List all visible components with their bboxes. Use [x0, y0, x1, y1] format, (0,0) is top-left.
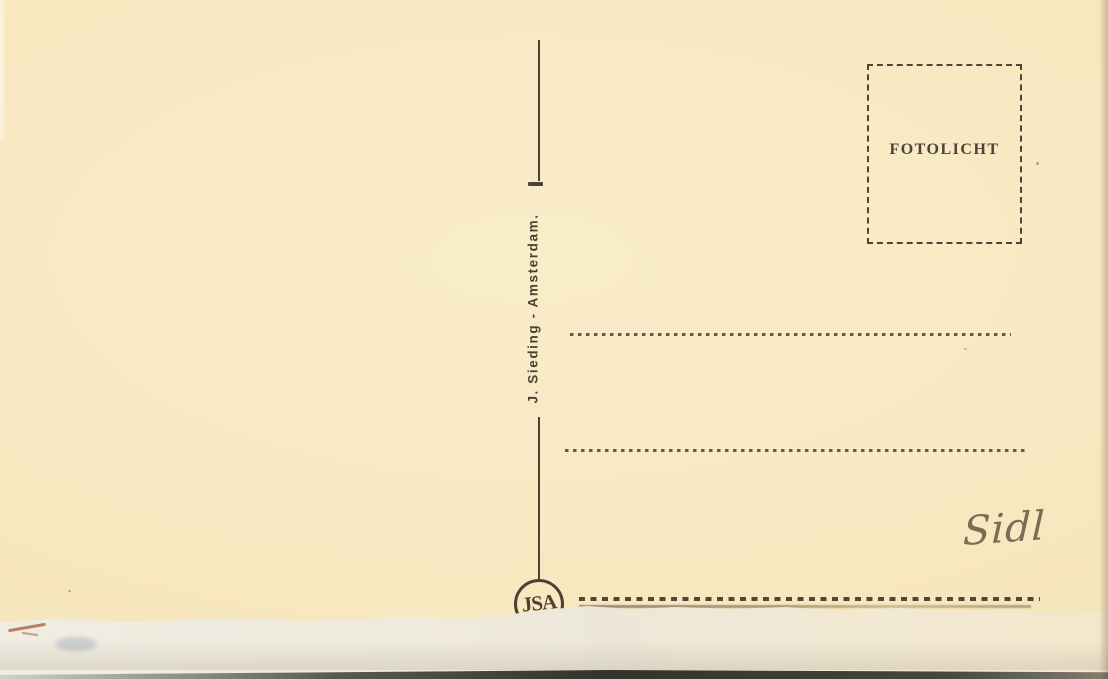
address-line-1 — [570, 333, 1011, 336]
divider-line-top — [538, 40, 540, 181]
tear-smudge-line — [579, 605, 1031, 608]
handwriting-note: Sidl — [962, 503, 1046, 555]
stamp-box: FOTOLICHT — [867, 64, 1022, 244]
publisher-credit: J. Sieding - Amsterdam. — [525, 199, 542, 419]
paper-speck — [964, 348, 967, 350]
paper-speck — [1036, 162, 1039, 165]
blue-ink-smudge — [55, 637, 97, 651]
divider-dash — [528, 182, 543, 186]
divider-line-bottom — [538, 417, 540, 579]
address-line-3 — [579, 597, 1040, 601]
stamp-box-label: FOTOLICHT — [889, 141, 999, 159]
paper-speck — [68, 590, 71, 592]
paper-edge-highlight — [0, 0, 6, 140]
address-line-2 — [565, 449, 1025, 452]
postcard-back-scan: J. Sieding - Amsterdam. JSA FOTOLICHT Si… — [0, 0, 1108, 679]
torn-paper-shading — [0, 640, 1108, 670]
paper-edge-shadow-right — [1099, 0, 1108, 679]
postcard-paper: J. Sieding - Amsterdam. JSA FOTOLICHT Si… — [0, 0, 1108, 679]
